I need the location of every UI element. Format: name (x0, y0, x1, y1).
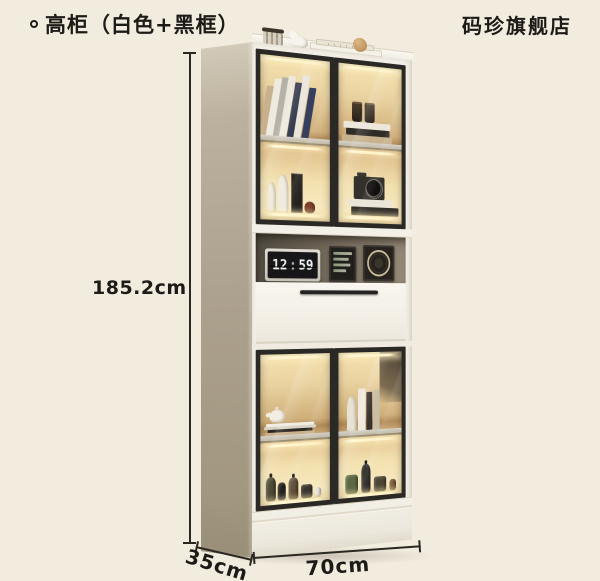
leaning-books (263, 70, 315, 139)
bullet-icon (30, 20, 38, 28)
flip-clock-face: 12 : 59 (268, 251, 318, 278)
round-emblem-frame (363, 245, 394, 281)
drawer-front (256, 282, 406, 344)
led-strip (262, 355, 327, 360)
flip-clock: 12 : 59 (265, 248, 320, 281)
upper-left-glass-door (256, 48, 334, 226)
jar (374, 476, 386, 492)
store-name: 码珍旗舰店 (462, 10, 572, 39)
led-strip (262, 212, 327, 217)
white-vase (278, 174, 289, 212)
height-dimension-label: 185.2cm (92, 277, 180, 299)
standing-book (358, 388, 366, 430)
cabinet-side-panel (201, 42, 252, 558)
green-jar (345, 474, 358, 494)
red-ornament (305, 201, 316, 213)
lower-left-glass-door (256, 348, 334, 511)
open-shelf-niche: 12 : 59 (256, 233, 406, 283)
lower-right-glass-door (334, 347, 405, 505)
white-vase (268, 182, 276, 212)
bottle (288, 477, 298, 499)
digital-calendar (329, 246, 356, 282)
standing-book (366, 392, 372, 430)
calendar-row (333, 269, 346, 272)
led-strip (340, 65, 399, 74)
jar (301, 484, 312, 499)
bottle (278, 482, 286, 500)
page-title-wrap: 高柜（白色+黑框） (30, 9, 240, 39)
interior-shadow (380, 351, 402, 402)
clock-minutes: 59 (298, 257, 313, 273)
framed-art (291, 173, 303, 213)
calendar-row (333, 252, 352, 255)
small-candle (315, 487, 321, 497)
product-image: 高柜（白色+黑框） 码珍旗舰店 (0, 0, 600, 581)
camera-decor (354, 176, 385, 200)
white-cylinder (347, 396, 356, 431)
bottle (389, 479, 396, 491)
cabinet-front: 12 : 59 (252, 42, 412, 558)
bottle (361, 464, 370, 493)
dark-cup (365, 103, 375, 124)
drawer-handle (300, 290, 378, 294)
bottle (266, 477, 276, 502)
upper-right-glass-door (334, 57, 405, 229)
calendar-row (333, 258, 348, 261)
height-dimension-line (189, 52, 191, 544)
clock-separator: : (289, 257, 297, 273)
standing-book (373, 390, 380, 430)
page-title: 高柜（白色+黑框） (45, 9, 240, 39)
dark-cup (352, 101, 362, 122)
white-teapot (269, 409, 284, 423)
led-strip (262, 56, 327, 66)
height-dimension-tick (183, 52, 196, 54)
clock-hours: 12 (272, 257, 287, 273)
calendar-row (333, 263, 350, 266)
